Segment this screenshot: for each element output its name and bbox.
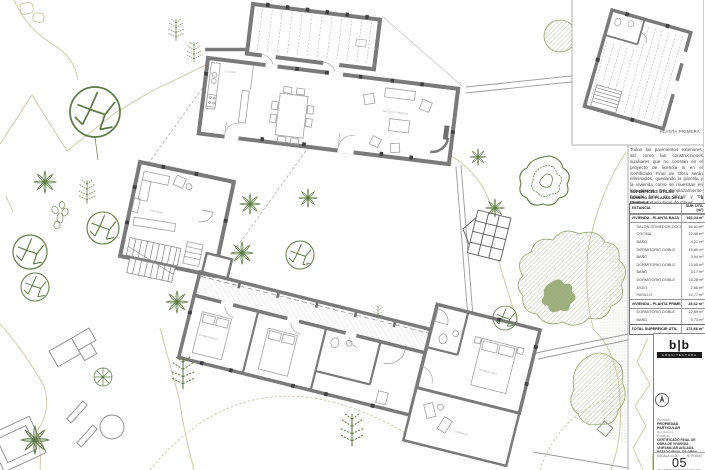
tree-icon	[87, 212, 119, 244]
areas-table-title: SUPERFICIES ÚTILES	[630, 189, 703, 194]
fern-icon	[186, 42, 201, 62]
fern-icon	[78, 180, 96, 203]
logo-text: b|b	[657, 339, 702, 351]
tree-icon	[286, 241, 314, 269]
fern-icon	[168, 19, 185, 41]
area-row: ASEO2,86 m²	[630, 284, 705, 292]
client-block: Promotor: PROPIEDAD PARTICULAR Illes Bal…	[654, 418, 705, 434]
title-block: b|b ARQUITECTURA Promotor: PROPIEDAD PAR…	[653, 333, 705, 470]
column-room: ESTANCIA	[632, 206, 651, 210]
hatched-tree-canopy	[544, 20, 576, 52]
inset-plan-label: PLANTA PRIMERA	[642, 129, 700, 134]
areas-table-header: ESTANCIA SUP. ÚTIL (m²)	[630, 204, 705, 214]
site-plan: SALÓN-COMEDOR COCINA ESTUDIO	[0, 0, 705, 470]
logo: b|b ARQUITECTURA	[654, 339, 705, 358]
logo-caption: ARQUITECTURA	[657, 352, 702, 358]
hatched-tree-canopy	[571, 353, 625, 425]
building-living: SALÓN-COMEDOR COCINA	[197, 56, 461, 167]
drawing-sheet: SALÓN-COMEDOR COCINA ESTUDIO	[0, 0, 705, 470]
area-row: BAÑO4,21 m²	[630, 238, 705, 246]
area-row: BAÑO5,73 m²	[630, 316, 705, 324]
tree-icon	[21, 273, 49, 301]
building-bedroom-wing: DORMITORIO DORMITORIO TERRAZA	[170, 244, 542, 466]
hatched-tree-canopy	[518, 231, 626, 325]
area-row: DORMITORIO DOBLE13,65 m²	[630, 261, 705, 269]
wheel-tree-icon	[94, 368, 112, 386]
area-row: DORMITORIO DOBLE22,89 m²	[630, 309, 705, 317]
palm-icon	[22, 427, 49, 454]
area-row: VIVIENDA - PLANTA BAJA145,04 m²	[630, 214, 705, 224]
area-row: BAÑO3,94 m²	[630, 253, 705, 261]
garden-structure	[458, 208, 511, 261]
area-row: SALÓN-COMEDOR-COCINA56,81 m²	[630, 223, 705, 231]
plant-icon	[231, 242, 253, 264]
plant-icon	[166, 291, 188, 313]
plant-icon	[240, 194, 260, 214]
areas-table: ESTANCIA SUP. ÚTIL (m²) VIVIENDA - PLANT…	[629, 203, 705, 335]
fern-icon	[339, 414, 364, 446]
area-row: BAÑO4,17 m²	[630, 269, 705, 277]
area-row: DORMITORIO DOBLE16,28 m²	[630, 276, 705, 284]
client-name: PROPIEDAD PARTICULAR	[657, 422, 702, 430]
area-row: COCINA12,46 m²	[630, 231, 705, 239]
plant-icon	[34, 171, 56, 193]
scribble-tree-icon	[520, 156, 569, 205]
tree-icon	[13, 235, 47, 269]
cactus-icon	[51, 202, 70, 230]
area-row: PASILLO14,77 m²	[630, 291, 705, 299]
plant-icon	[299, 189, 317, 207]
area-row: VIVIENDA - PLANTA PRIMERA28,62 m²	[630, 299, 705, 309]
tree-icon	[70, 87, 120, 137]
column-area: SUP. ÚTIL (m²)	[681, 204, 704, 213]
areas-table-body: VIVIENDA - PLANTA BAJA145,04 m²SALÓN-COM…	[630, 214, 705, 334]
plant-icon	[470, 149, 486, 165]
area-row: DORMITORIO DOBLE15,89 m²	[630, 246, 705, 254]
